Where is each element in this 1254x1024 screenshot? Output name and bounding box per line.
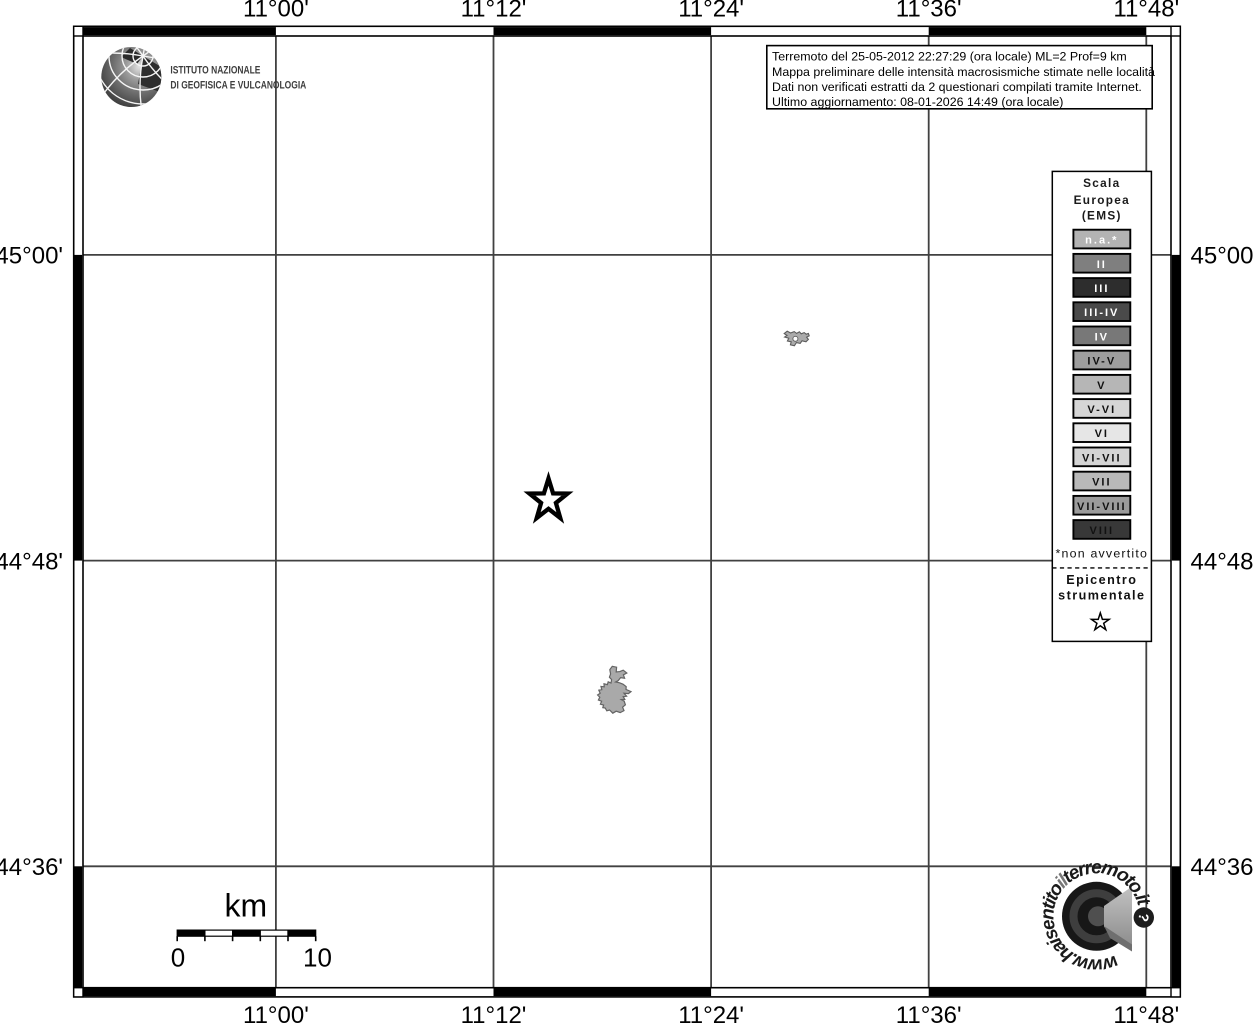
svg-text:Europea: Europea	[1074, 193, 1130, 207]
svg-text:Mappa preliminare delle intens: Mappa preliminare delle intensità macros…	[772, 65, 1155, 79]
svg-text:44°48': 44°48'	[0, 548, 63, 575]
svg-text:III: III	[1094, 283, 1109, 295]
svg-text:VI-VII: VI-VII	[1082, 452, 1122, 464]
svg-text:45°00': 45°00'	[0, 243, 63, 270]
svg-text:11°00': 11°00'	[243, 0, 309, 22]
svg-text:11°24': 11°24'	[678, 1002, 744, 1024]
svg-text:VIII: VIII	[1090, 525, 1115, 537]
svg-text:11°36': 11°36'	[896, 1002, 962, 1024]
svg-text:Dati non verificati estratti d: Dati non verificati estratti da 2 questi…	[772, 80, 1142, 94]
svg-text:V: V	[1097, 380, 1106, 392]
svg-text:IV: IV	[1095, 331, 1109, 343]
svg-text:0: 0	[171, 943, 185, 973]
svg-text:strumentale: strumentale	[1058, 588, 1145, 602]
svg-text:V-VI: V-VI	[1087, 404, 1116, 416]
svg-text:VII-VIII: VII-VIII	[1077, 501, 1127, 513]
svg-text:11°12': 11°12'	[461, 0, 527, 22]
svg-text:44°36': 44°36'	[0, 854, 63, 881]
svg-text:VI: VI	[1095, 428, 1109, 440]
svg-text:11°36': 11°36'	[896, 0, 962, 22]
svg-text:11°00': 11°00'	[243, 1002, 309, 1024]
svg-text:DI GEOFISICA E VULCANOLOGIA: DI GEOFISICA E VULCANOLOGIA	[170, 80, 306, 92]
svg-text:km: km	[224, 888, 267, 924]
svg-text:III-IV: III-IV	[1084, 307, 1119, 319]
svg-text:11°48': 11°48'	[1113, 0, 1179, 22]
svg-text:VII: VII	[1092, 477, 1111, 489]
svg-text:II: II	[1097, 259, 1107, 271]
svg-text:45°00': 45°00'	[1191, 243, 1254, 270]
svg-text:Terremoto del 25-05-2012 22:27: Terremoto del 25-05-2012 22:27:29 (ora l…	[772, 50, 1127, 64]
svg-text:Scala: Scala	[1083, 176, 1120, 190]
svg-text:10: 10	[303, 943, 332, 973]
svg-text:IV-V: IV-V	[1087, 356, 1116, 368]
svg-text:ISTITUTO NAZIONALE: ISTITUTO NAZIONALE	[170, 64, 260, 76]
svg-text:Epicentro: Epicentro	[1066, 573, 1137, 587]
svg-text:Ultimo aggiornamento: 08-01-20: Ultimo aggiornamento: 08-01-2026 14:49 (…	[772, 95, 1063, 109]
svg-text:(EMS): (EMS)	[1082, 208, 1122, 222]
svg-text:*non avvertito: *non avvertito	[1056, 547, 1149, 561]
svg-text:11°24': 11°24'	[678, 0, 744, 22]
svg-text:n.a.*: n.a.*	[1085, 235, 1118, 247]
svg-text:11°12': 11°12'	[461, 1002, 527, 1024]
svg-text:11°48': 11°48'	[1113, 1002, 1179, 1024]
svg-text:44°36': 44°36'	[1191, 854, 1254, 881]
svg-text:44°48': 44°48'	[1191, 548, 1254, 575]
